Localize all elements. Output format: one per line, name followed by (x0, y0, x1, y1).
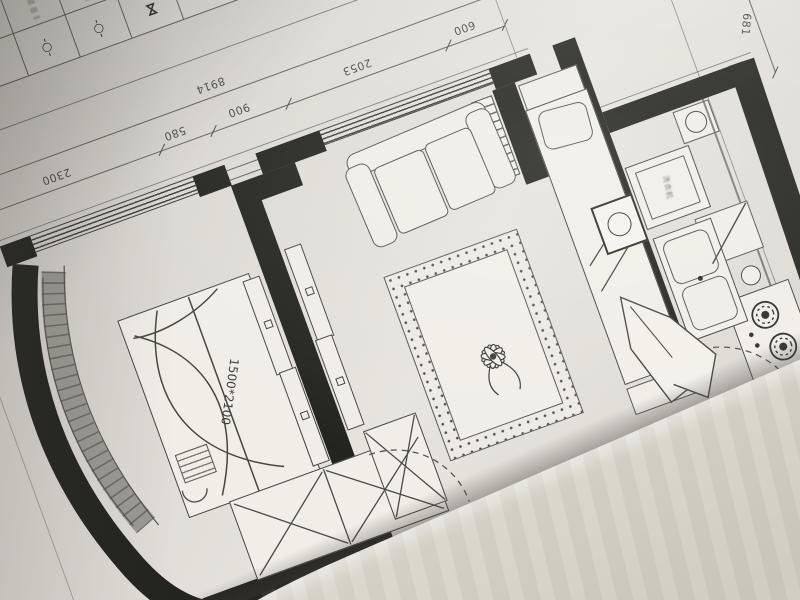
curved-hatch-band (29, 272, 146, 535)
bed-size-label: 1500*2100 (218, 357, 241, 425)
curved-hatch-ticks (29, 272, 146, 535)
legend-table: -○- -○- -○- ⋈ (0, 0, 329, 114)
dim-label-681: 681 (739, 13, 754, 37)
entry-threshold-line (226, 159, 257, 172)
rug-inner (404, 249, 563, 441)
dim-label-580: 580 (162, 123, 188, 143)
sink-basin (680, 273, 741, 333)
dim-extension-line (649, 0, 701, 80)
dim-label-900: 900 (226, 100, 252, 120)
hatch-edge-line (40, 266, 158, 534)
drawing-border-line (0, 348, 96, 600)
gas-valve-circle (738, 263, 764, 289)
photo-of-floorplan: -○- -○- -○- ⋈ 8914 1861 2300 580 (0, 0, 800, 600)
dim-label-600: 600 (452, 18, 478, 38)
